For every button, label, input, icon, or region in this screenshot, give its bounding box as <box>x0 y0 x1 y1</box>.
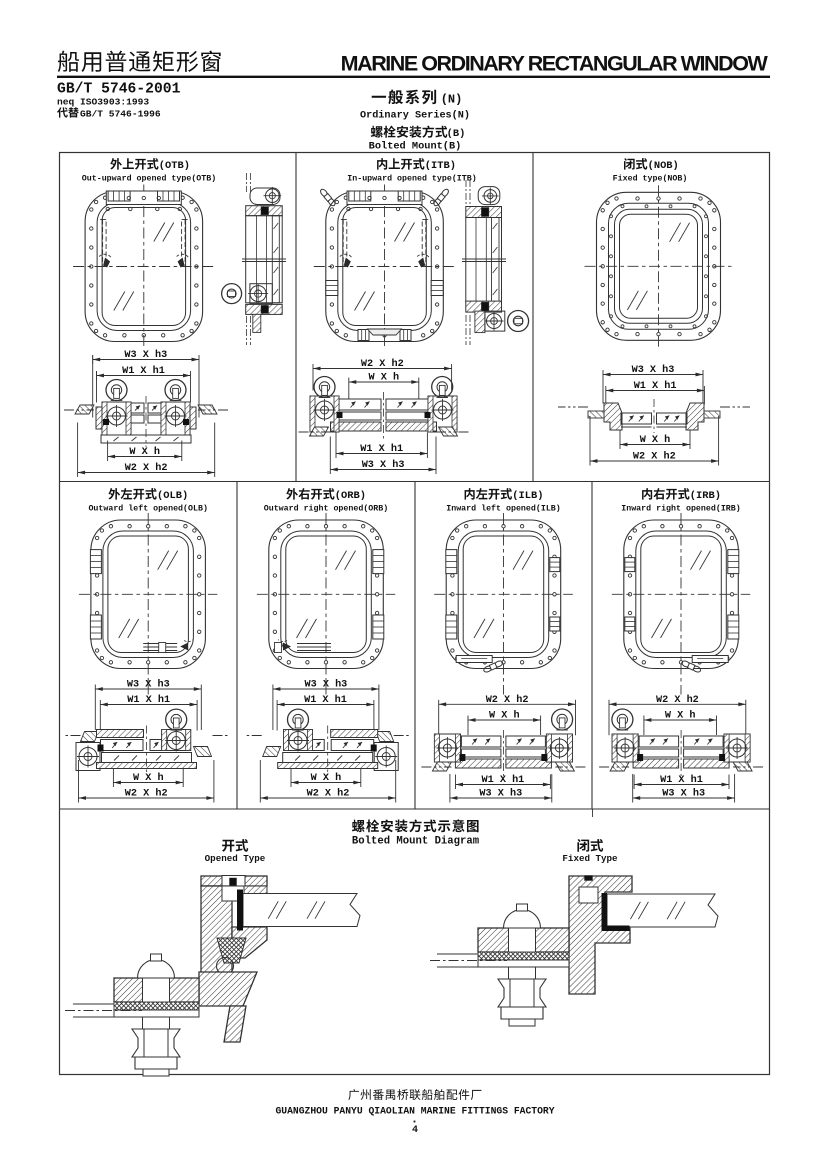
svg-text:Bolted Mount(B): Bolted Mount(B) <box>369 141 462 153</box>
svg-text:Outward left opened(OLB): Outward left opened(OLB) <box>88 504 208 514</box>
svg-text:Fixed type(NOB): Fixed type(NOB) <box>613 174 688 184</box>
svg-text:neq ISO3903:1993: neq ISO3903:1993 <box>57 96 149 107</box>
svg-text:W X h: W X h <box>489 710 520 722</box>
svg-text:In-upward opened type(ITB): In-upward opened type(ITB) <box>347 174 476 184</box>
svg-text:W X h: W X h <box>133 772 164 784</box>
svg-text:W1 X h1: W1 X h1 <box>360 443 403 455</box>
svg-text:Ordinary Series(N): Ordinary Series(N) <box>360 110 470 122</box>
svg-text:W3 X h3: W3 X h3 <box>362 459 405 471</box>
svg-text:Out-upward opened type(OTB): Out-upward opened type(OTB) <box>82 174 216 184</box>
svg-text:W2 X h2: W2 X h2 <box>361 358 404 370</box>
svg-text:W X h: W X h <box>640 434 671 446</box>
svg-text:(ILB): (ILB) <box>512 490 543 502</box>
svg-text:W1 X h1: W1 X h1 <box>634 380 677 392</box>
svg-text:W2 X h2: W2 X h2 <box>656 694 699 706</box>
svg-text:W1 X h1: W1 X h1 <box>482 774 525 786</box>
svg-text:(NOB): (NOB) <box>648 160 679 172</box>
svg-text:W2 X h2: W2 X h2 <box>307 788 350 800</box>
svg-text:W3 X h3: W3 X h3 <box>305 679 348 691</box>
svg-text:(ORB): (ORB) <box>335 490 366 502</box>
svg-text:Opened Type: Opened Type <box>205 853 266 864</box>
svg-text:W2 X h2: W2 X h2 <box>486 694 529 706</box>
svg-text:W1 X h1: W1 X h1 <box>127 694 170 706</box>
svg-text:W2 X h2: W2 X h2 <box>125 462 168 474</box>
svg-text:Inward left opened(ILB): Inward left opened(ILB) <box>446 504 561 514</box>
svg-text:GB/T 5746-2001: GB/T 5746-2001 <box>57 82 181 98</box>
svg-text:Bolted Mount Diagram: Bolted Mount Diagram <box>352 836 479 848</box>
svg-text:W2 X h2: W2 X h2 <box>125 788 168 800</box>
svg-text:W3 X h3: W3 X h3 <box>632 364 675 376</box>
svg-text:4: 4 <box>412 1125 418 1136</box>
svg-text:MARINE ORDINARY RECTANGULAR WI: MARINE ORDINARY RECTANGULAR WINDOW <box>341 52 769 76</box>
svg-text:W1 X h1: W1 X h1 <box>122 365 165 377</box>
svg-text:W3 X h3: W3 X h3 <box>127 679 170 691</box>
svg-text:Fixed Type: Fixed Type <box>562 853 618 864</box>
svg-text:(ITB): (ITB) <box>425 160 456 172</box>
svg-text:(IRB): (IRB) <box>690 490 721 502</box>
svg-text:(B): (B) <box>447 128 466 140</box>
svg-text:W3 X h3: W3 X h3 <box>662 788 705 800</box>
svg-text:(N): (N) <box>441 92 463 106</box>
svg-text:W X h: W X h <box>369 372 400 384</box>
svg-text:W X h: W X h <box>311 772 342 784</box>
svg-text:Outward right opened(ORB): Outward right opened(ORB) <box>264 504 388 514</box>
svg-text:(OTB): (OTB) <box>159 160 190 172</box>
svg-text:W X h: W X h <box>129 446 160 458</box>
svg-text:W X h: W X h <box>665 710 696 722</box>
svg-text:(OLB): (OLB) <box>157 490 188 502</box>
svg-text:W1 X h1: W1 X h1 <box>304 694 347 706</box>
svg-text:W3 X h3: W3 X h3 <box>124 349 167 361</box>
svg-text:GB/T 5746-1996: GB/T 5746-1996 <box>80 108 161 119</box>
svg-text:W3 X h3: W3 X h3 <box>479 788 522 800</box>
svg-text:W2 X h2: W2 X h2 <box>633 451 676 463</box>
svg-text:GUANGZHOU PANYU QIAOLIAN MARIN: GUANGZHOU PANYU QIAOLIAN MARINE FITTINGS… <box>275 1106 554 1117</box>
svg-text:Inward right opened(IRB): Inward right opened(IRB) <box>621 504 741 514</box>
svg-text:W1 X h1: W1 X h1 <box>660 774 703 786</box>
